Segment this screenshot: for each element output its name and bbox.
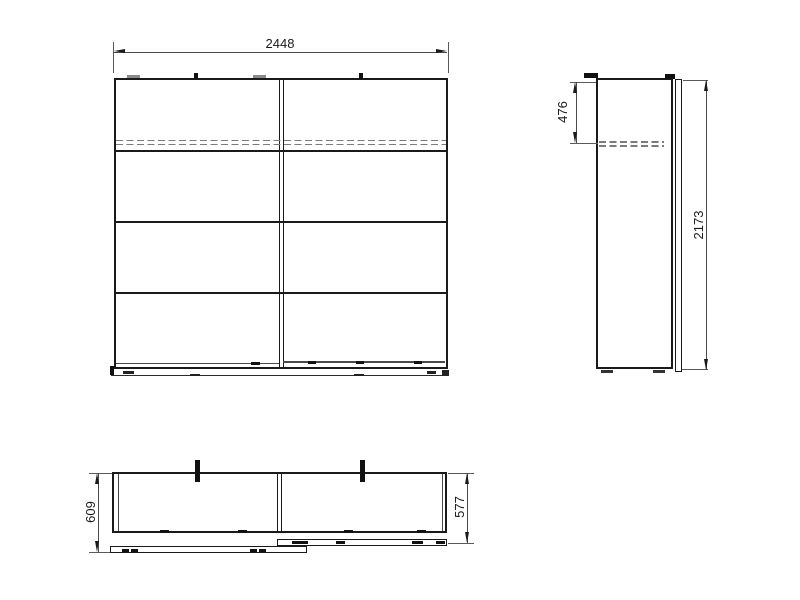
- total-depth-extension-line-bottom: [89, 552, 110, 553]
- side-door-top-roller-mark: [665, 74, 675, 79]
- top-front-edge-tick-1: [160, 530, 169, 533]
- sliding-door-profile: [675, 79, 682, 372]
- front-width-extension-line-left: [113, 42, 114, 73]
- front-floor-rail-line: [111, 375, 449, 377]
- total-depth-arrow-bottom: [95, 541, 99, 552]
- front-track-roller-1a: [122, 549, 129, 553]
- front-hidden-rail-dashed-line-lower: [116, 144, 446, 146]
- front-track-roller-2a: [250, 549, 257, 553]
- top-carcass-depth-dim-label: 577: [453, 490, 467, 524]
- front-door-meeting-stile: [279, 80, 284, 367]
- side-foot-mark-2: [653, 370, 665, 374]
- front-foot-mark-4: [427, 371, 436, 374]
- top-bracket-mark-right: [359, 73, 363, 79]
- carcass-depth-arrow-top: [465, 473, 469, 484]
- top-bracket-mark-left: [194, 73, 198, 79]
- right-door-guide-tick-3: [414, 361, 422, 364]
- rear-track-roller-3: [412, 541, 423, 545]
- front-hidden-rail-dashed-line-upper: [116, 140, 446, 142]
- front-door-track: [110, 546, 307, 553]
- top-roller-mark-left: [127, 75, 140, 78]
- top-roller-mark-right: [253, 75, 266, 78]
- front-width-dim-label: 2448: [245, 37, 315, 51]
- top-total-depth-dim-label: 609: [84, 495, 98, 529]
- front-left-corner-fitting: [110, 366, 114, 375]
- left-door-bottom-guide-tick: [251, 362, 260, 365]
- top-wall-bracket-left: [195, 460, 200, 482]
- rail-depth-arrow-bottom: [573, 132, 577, 143]
- top-right-wall-inner-line: [442, 474, 443, 531]
- height-arrow-top: [704, 80, 708, 91]
- side-hidden-rail-dashed-line-lower: [599, 145, 664, 147]
- front-width-arrow-right: [436, 49, 447, 53]
- top-front-edge-tick-3: [344, 530, 353, 533]
- front-track-roller-1b: [131, 549, 138, 553]
- front-panel-line-2: [116, 221, 446, 223]
- top-center-partition: [277, 474, 282, 531]
- top-view: 609 577: [0, 420, 520, 600]
- side-rail-depth-dim-label: 476: [556, 95, 570, 129]
- height-arrow-bottom: [704, 359, 708, 370]
- right-door-guide-tick-2: [356, 361, 364, 364]
- rear-track-roller-2: [336, 541, 345, 545]
- front-width-extension-line-right: [448, 42, 449, 73]
- front-foot-mark-2: [190, 374, 200, 377]
- wardrobe-side-outline: [596, 78, 673, 369]
- front-panel-line-3: [116, 292, 446, 294]
- front-track-roller-2b: [259, 549, 266, 553]
- side-top-bracket-mark: [584, 73, 598, 78]
- total-depth-arrow-top: [95, 473, 99, 484]
- height-dimension-line: [706, 80, 707, 370]
- front-width-arrow-left: [114, 49, 125, 53]
- top-left-wall-inner-line: [118, 474, 119, 531]
- front-view: 2448: [0, 0, 500, 400]
- rear-track-roller-1: [292, 541, 308, 545]
- top-wall-bracket-right: [360, 460, 365, 482]
- technical-drawing-canvas: 2448: [0, 0, 800, 600]
- front-right-corner-fitting: [442, 370, 449, 376]
- total-depth-extension-line-top: [89, 473, 112, 474]
- rear-track-roller-4: [436, 541, 445, 545]
- top-front-edge-tick-2: [238, 530, 247, 533]
- carcass-depth-extension-line-top: [448, 473, 474, 474]
- top-front-edge-tick-4: [417, 530, 426, 533]
- front-width-dimension-line: [114, 52, 447, 53]
- carcass-depth-extension-line-bottom: [448, 543, 474, 544]
- front-panel-line-1: [116, 150, 446, 152]
- front-foot-mark-3: [354, 374, 364, 377]
- right-door-guide-tick-1: [308, 361, 316, 364]
- side-view: 476 2173: [500, 0, 800, 400]
- rail-depth-arrow-top: [573, 82, 577, 93]
- front-foot-mark-1: [123, 371, 134, 374]
- side-height-dim-label: 2173: [692, 205, 706, 245]
- carcass-depth-arrow-bottom: [465, 532, 469, 543]
- side-foot-mark-1: [601, 370, 613, 374]
- side-hidden-rail-dashed-line-upper: [599, 141, 664, 143]
